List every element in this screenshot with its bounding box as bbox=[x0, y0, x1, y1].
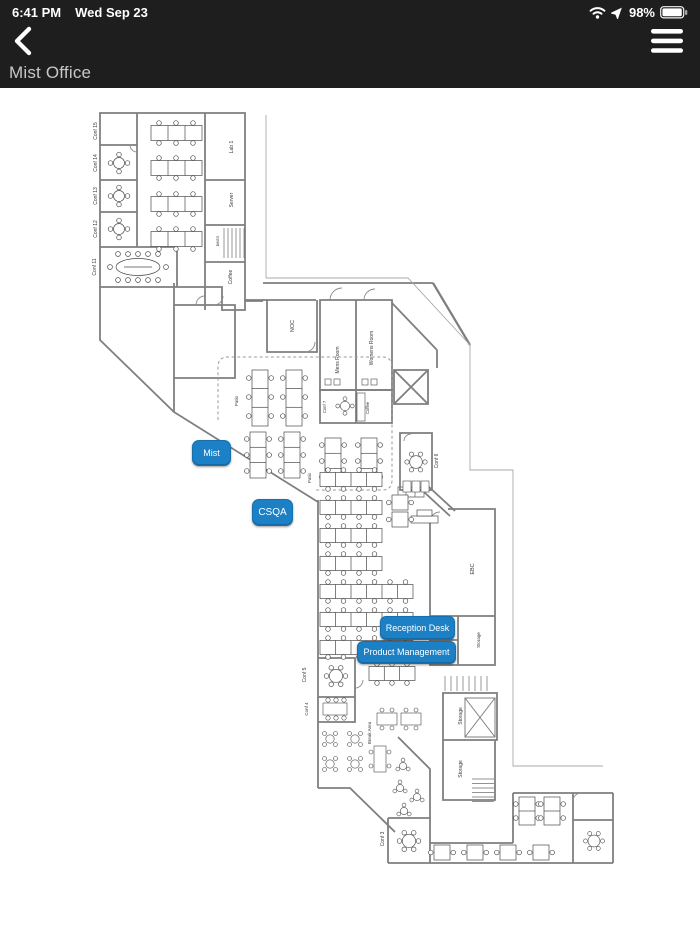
boundary-lines bbox=[266, 115, 603, 766]
room-label-lab1: Lab 1 bbox=[229, 141, 235, 154]
room-label-conf4: Conf 4 bbox=[304, 702, 309, 716]
room-label-server: Server bbox=[229, 192, 235, 207]
room-label-patio-lower: Patio bbox=[307, 472, 312, 483]
battery-icon bbox=[660, 6, 688, 19]
walls-layer bbox=[100, 113, 613, 863]
room-label-conf15: Conf 15 bbox=[93, 122, 99, 140]
status-bar: 6:41 PM Wed Sep 23 98% bbox=[0, 0, 700, 24]
room-label-patio-upper: Patio bbox=[234, 395, 239, 406]
map-button-product-management[interactable]: Product Management bbox=[357, 641, 456, 664]
room-label-conf14: Conf 14 bbox=[93, 154, 99, 172]
back-button[interactable] bbox=[10, 26, 40, 56]
room-label-storage-low: Storage bbox=[458, 760, 464, 778]
room-label-conf7: Conf 7 bbox=[322, 400, 327, 413]
room-label-conf12: Conf 12 bbox=[93, 220, 99, 238]
floor-plan-canvas[interactable]: Conf 15 Conf 14 Conf 13 Conf 12 Conf 11 … bbox=[0, 88, 700, 934]
room-label-conf11: Conf 11 bbox=[92, 258, 98, 275]
room-label-storage-mid: Storage bbox=[458, 707, 464, 725]
map-button-csqa[interactable]: CSQA bbox=[252, 499, 293, 526]
room-label-coffee-mid: Coffee bbox=[365, 401, 370, 414]
room-label-ebc: EBC bbox=[470, 563, 476, 574]
room-label-mens-room: Mens Room bbox=[335, 347, 341, 374]
room-label-break-area: Break Area bbox=[367, 721, 372, 744]
room-label-noc: NOC bbox=[290, 320, 296, 332]
room-label-bikes: BIKES bbox=[216, 235, 220, 246]
header: 6:41 PM Wed Sep 23 98% bbox=[0, 0, 700, 88]
room-label-womens-room: Womens Room bbox=[369, 331, 375, 365]
floor-plan-drawing: Conf 15 Conf 14 Conf 13 Conf 12 Conf 11 … bbox=[0, 88, 700, 934]
room-label-conf6: Conf 6 bbox=[434, 453, 440, 468]
page-title: Mist Office bbox=[9, 63, 91, 83]
room-label-coffee-top: Coffee bbox=[228, 269, 234, 284]
map-button-mist[interactable]: Mist bbox=[192, 440, 231, 466]
status-date: Wed Sep 23 bbox=[75, 5, 148, 20]
room-label-conf3: Conf 3 bbox=[380, 831, 386, 846]
location-arrow-icon bbox=[611, 6, 624, 19]
app: 6:41 PM Wed Sep 23 98% bbox=[0, 0, 700, 934]
room-label-conf13: Conf 13 bbox=[93, 187, 99, 205]
menu-button[interactable] bbox=[650, 28, 684, 54]
wifi-icon bbox=[589, 6, 606, 19]
room-label-conf5: Conf 5 bbox=[302, 667, 308, 682]
status-time: 6:41 PM bbox=[12, 5, 61, 20]
room-label-storage-ebc: Storage bbox=[476, 632, 481, 648]
battery-percent: 98% bbox=[629, 5, 655, 20]
map-button-reception-desk[interactable]: Reception Desk bbox=[380, 616, 455, 640]
